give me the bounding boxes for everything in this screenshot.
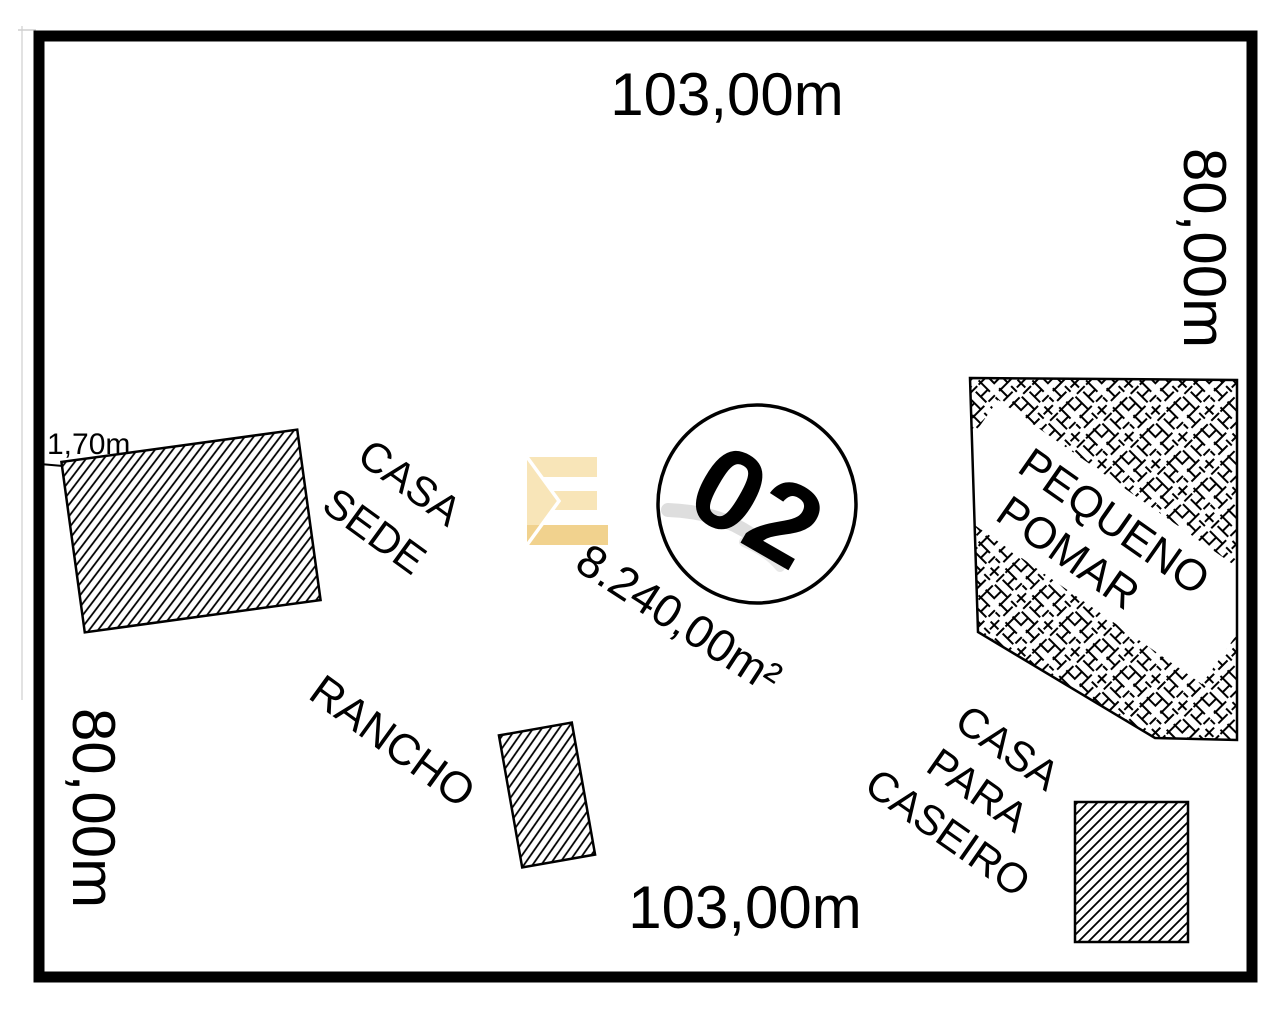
dimension-bottom: 103,00m [628, 874, 862, 941]
casa-sede-footprint [61, 430, 320, 633]
watermark-logo [527, 457, 608, 545]
survey-plan-page: 103,00m 103,00m 80,00m 80,00m 1,70m CASA… [0, 0, 1280, 1025]
pomar-area: PEQUENO POMAR [932, 378, 1269, 740]
caseiro-label: CASA PARA CASEIRO [857, 674, 1098, 906]
survey-plan-drawing: 103,00m 103,00m 80,00m 80,00m 1,70m CASA… [0, 0, 1280, 1025]
dimension-left: 80,00m [60, 708, 127, 908]
dimension-top: 103,00m [610, 61, 844, 128]
casa-sede-label: CASA SEDE [315, 430, 470, 584]
rancho-building [499, 723, 595, 868]
casa-sede-building [61, 430, 320, 633]
rancho-footprint [499, 723, 595, 868]
dimension-right: 80,00m [1171, 148, 1238, 348]
rancho-label: RANCHO [301, 666, 484, 818]
caseiro-building [1075, 802, 1188, 942]
lot-number-badge: 02 [658, 405, 856, 603]
